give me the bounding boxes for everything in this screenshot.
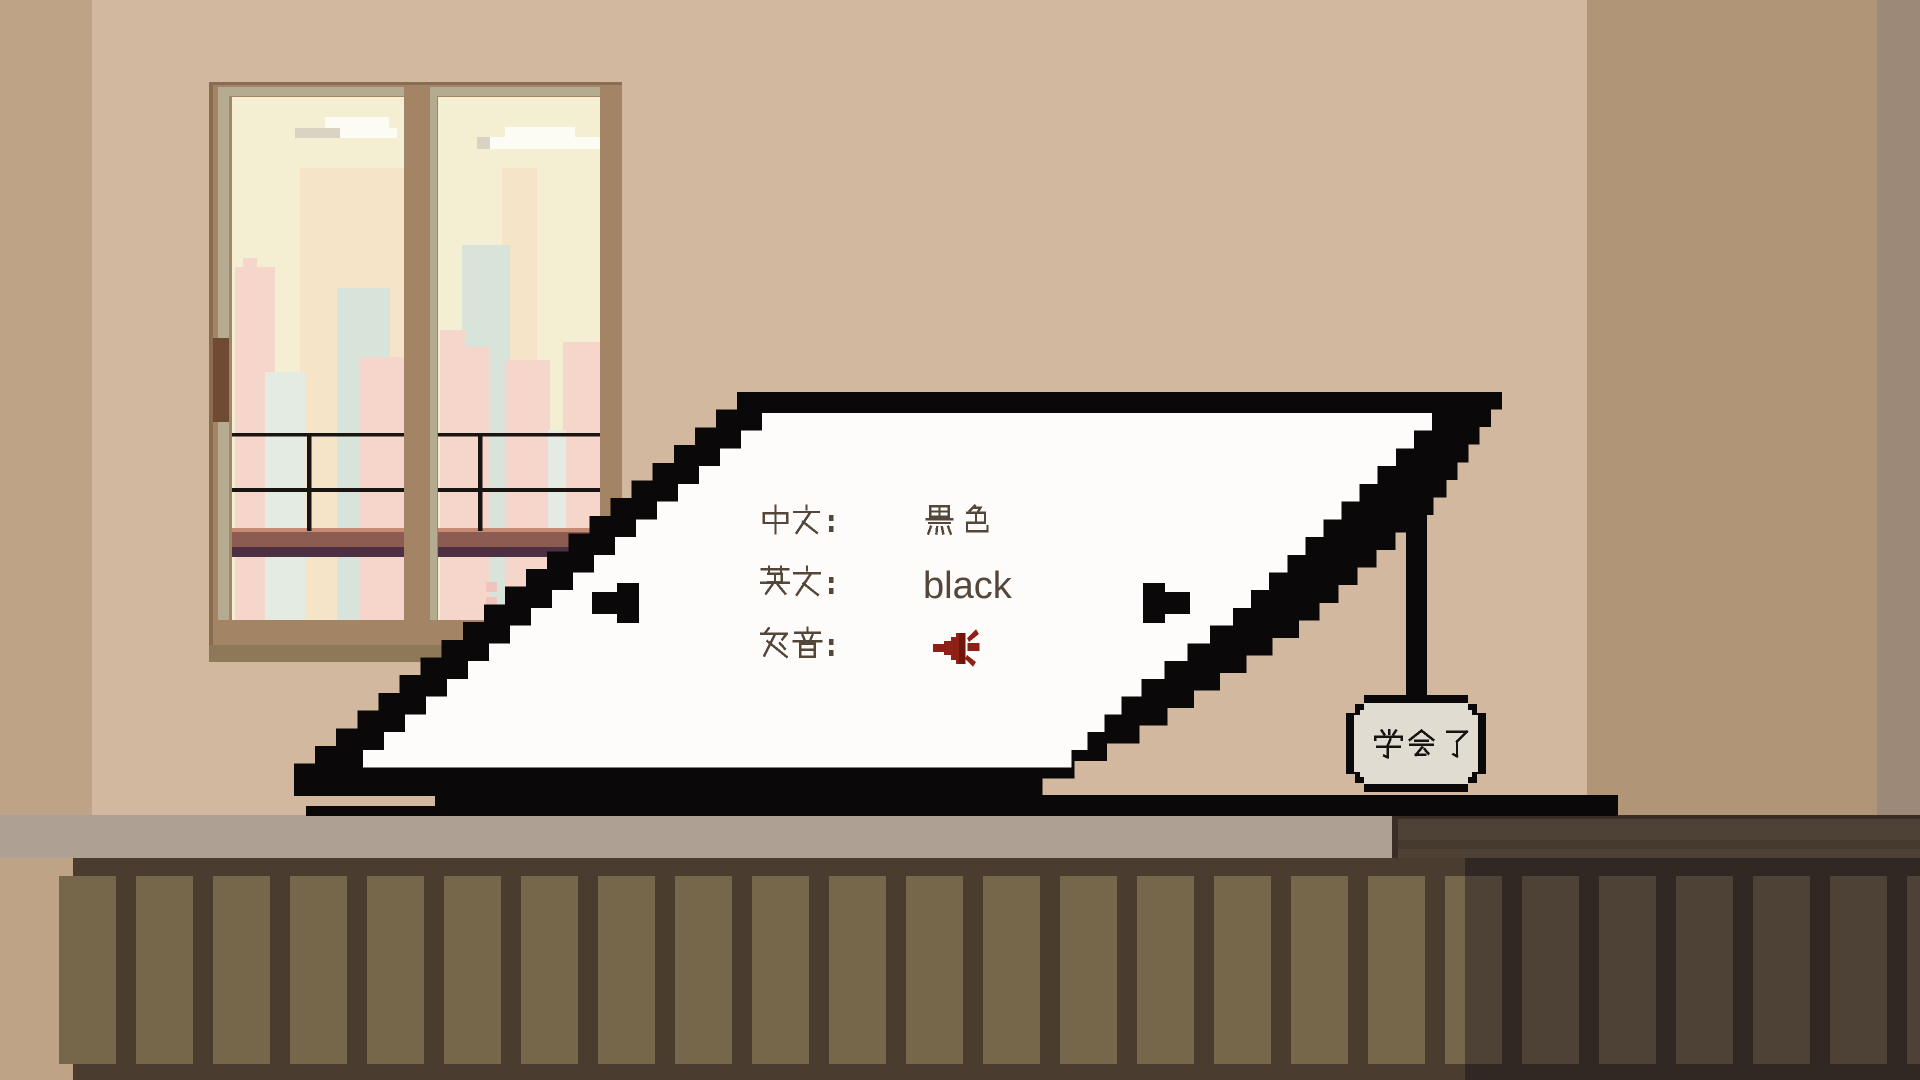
svg-text:black: black [923,565,1013,607]
